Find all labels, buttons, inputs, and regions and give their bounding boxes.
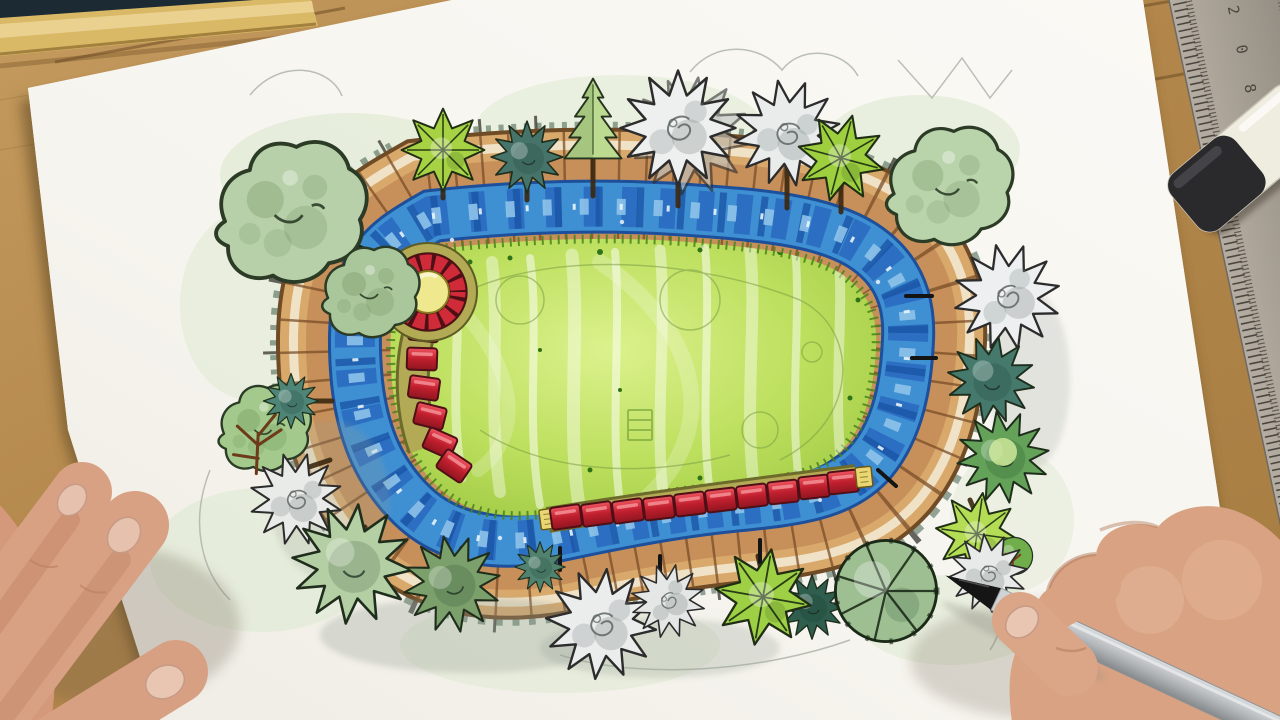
bush-highlight	[989, 438, 1017, 466]
sketch-photo-svg: 2 0 8 6	[0, 0, 1280, 720]
landscape-plan-drawing	[150, 49, 1074, 693]
maple-tree	[402, 109, 485, 192]
right-index-finger	[1058, 585, 1100, 608]
yellow-end-tile-right	[855, 466, 873, 488]
umbrella-tree	[835, 540, 936, 641]
photo-landscape-sketch-on-desk: 2 0 8 6	[0, 0, 1280, 720]
